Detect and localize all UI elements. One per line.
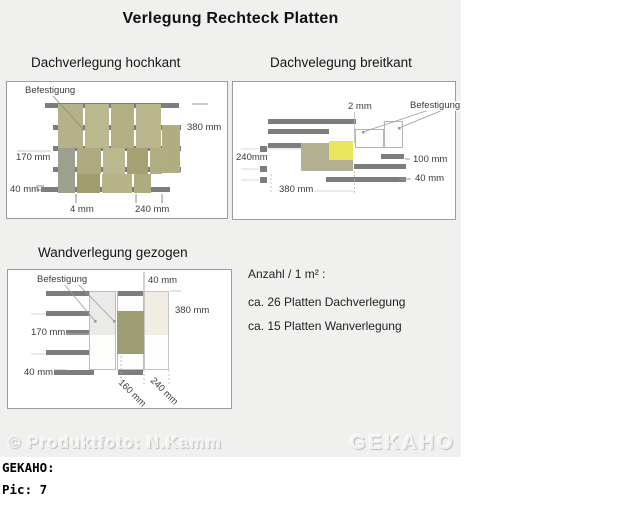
dim-label-240mm-rotated: 240 mm bbox=[148, 376, 179, 407]
dim-label-170mm: 170 mm bbox=[30, 328, 66, 338]
plate bbox=[85, 104, 109, 148]
plate bbox=[58, 148, 75, 193]
plate-outline bbox=[355, 129, 384, 148]
diagram-dachverlegung-hochkant: Befestigung 380 mm 170 mm 40 mm 4 mm 240… bbox=[6, 81, 228, 219]
diagram-wandverlegung-gezogen: Befestigung 40 mm 380 mm 170 mm 40 mm 16… bbox=[7, 269, 232, 409]
page-title: Verlegung Rechteck Platten bbox=[0, 10, 461, 28]
plate bbox=[102, 174, 132, 193]
batten bbox=[326, 177, 406, 182]
panel-title-hochkant: Dachverlegung hochkant bbox=[31, 55, 180, 70]
batten bbox=[46, 350, 94, 355]
info-heading: Anzahl / 1 m² : bbox=[248, 267, 325, 281]
dim-label-240mm: 240 mm bbox=[135, 205, 169, 215]
plate-outline bbox=[384, 121, 403, 148]
plate bbox=[162, 125, 180, 173]
copyright-watermark: © Produktfoto: N.Kamm bbox=[8, 433, 222, 453]
batten bbox=[354, 164, 406, 169]
plate-olive bbox=[117, 311, 144, 354]
diagram-dachvelegung-breitkant: 2 mm Befestigung 240mm 100 mm 40 mm 380 … bbox=[232, 81, 456, 220]
caption-brand: GEKAHO: bbox=[2, 460, 55, 475]
dim-label-380mm: 380 mm bbox=[187, 123, 221, 133]
dim-label-170mm: 170 mm bbox=[16, 153, 50, 163]
dim-label-40mm-bottom: 40 mm bbox=[23, 368, 54, 378]
plate bbox=[136, 104, 161, 148]
plate-column bbox=[89, 291, 116, 370]
plate bbox=[150, 148, 162, 174]
panel-title-wand: Wandverlegung gezogen bbox=[38, 245, 188, 260]
dim-label-40mm: 40 mm bbox=[414, 174, 445, 184]
plate bbox=[127, 148, 148, 174]
label-befestigung: Befestigung bbox=[409, 101, 461, 111]
plate-gray bbox=[90, 292, 115, 335]
plate-yellow bbox=[329, 141, 353, 160]
info-line-dachverlegung: ca. 26 Platten Dachverlegung bbox=[248, 295, 405, 309]
info-line-wanverlegung: ca. 15 Platten Wanverlegung bbox=[248, 319, 402, 333]
batten-end bbox=[260, 177, 267, 183]
dim-label-240mm: 240mm bbox=[235, 153, 269, 163]
plate bbox=[77, 174, 100, 193]
batten bbox=[268, 119, 356, 124]
dim-label-2mm: 2 mm bbox=[347, 102, 373, 112]
plate bbox=[134, 174, 151, 193]
label-befestigung: Befestigung bbox=[25, 86, 75, 96]
batten bbox=[46, 291, 94, 296]
dim-label-100mm: 100 mm bbox=[412, 155, 448, 165]
batten bbox=[118, 291, 143, 296]
plate bbox=[77, 148, 101, 174]
label-befestigung: Befestigung bbox=[36, 275, 88, 285]
caption-pic-number: Pic: 7 bbox=[2, 482, 47, 497]
plate bbox=[103, 148, 125, 174]
image-canvas: Verlegung Rechteck Platten Dachverlegung… bbox=[0, 0, 461, 457]
batten bbox=[268, 143, 301, 148]
batten-end bbox=[260, 166, 267, 172]
dim-label-380mm: 380 mm bbox=[278, 185, 314, 195]
plate bbox=[111, 104, 134, 148]
plate-cream bbox=[145, 292, 168, 335]
batten bbox=[46, 311, 94, 316]
batten bbox=[381, 154, 404, 159]
brand-watermark: GEKAHO bbox=[350, 432, 456, 455]
batten bbox=[268, 129, 329, 134]
dim-label-4mm: 4 mm bbox=[70, 205, 94, 215]
plate-column bbox=[144, 291, 169, 370]
dim-label-40mm: 40 mm bbox=[10, 185, 39, 195]
screenshot-root: Verlegung Rechteck Platten Dachverlegung… bbox=[0, 0, 640, 510]
dim-label-40mm-top: 40 mm bbox=[147, 276, 178, 286]
plate bbox=[58, 104, 83, 148]
panel-title-breitkant: Dachvelegung breitkant bbox=[270, 55, 412, 70]
dim-label-160mm-rotated: 160 mm bbox=[116, 378, 147, 409]
batten bbox=[118, 370, 143, 375]
dim-label-380mm: 380 mm bbox=[174, 306, 210, 316]
